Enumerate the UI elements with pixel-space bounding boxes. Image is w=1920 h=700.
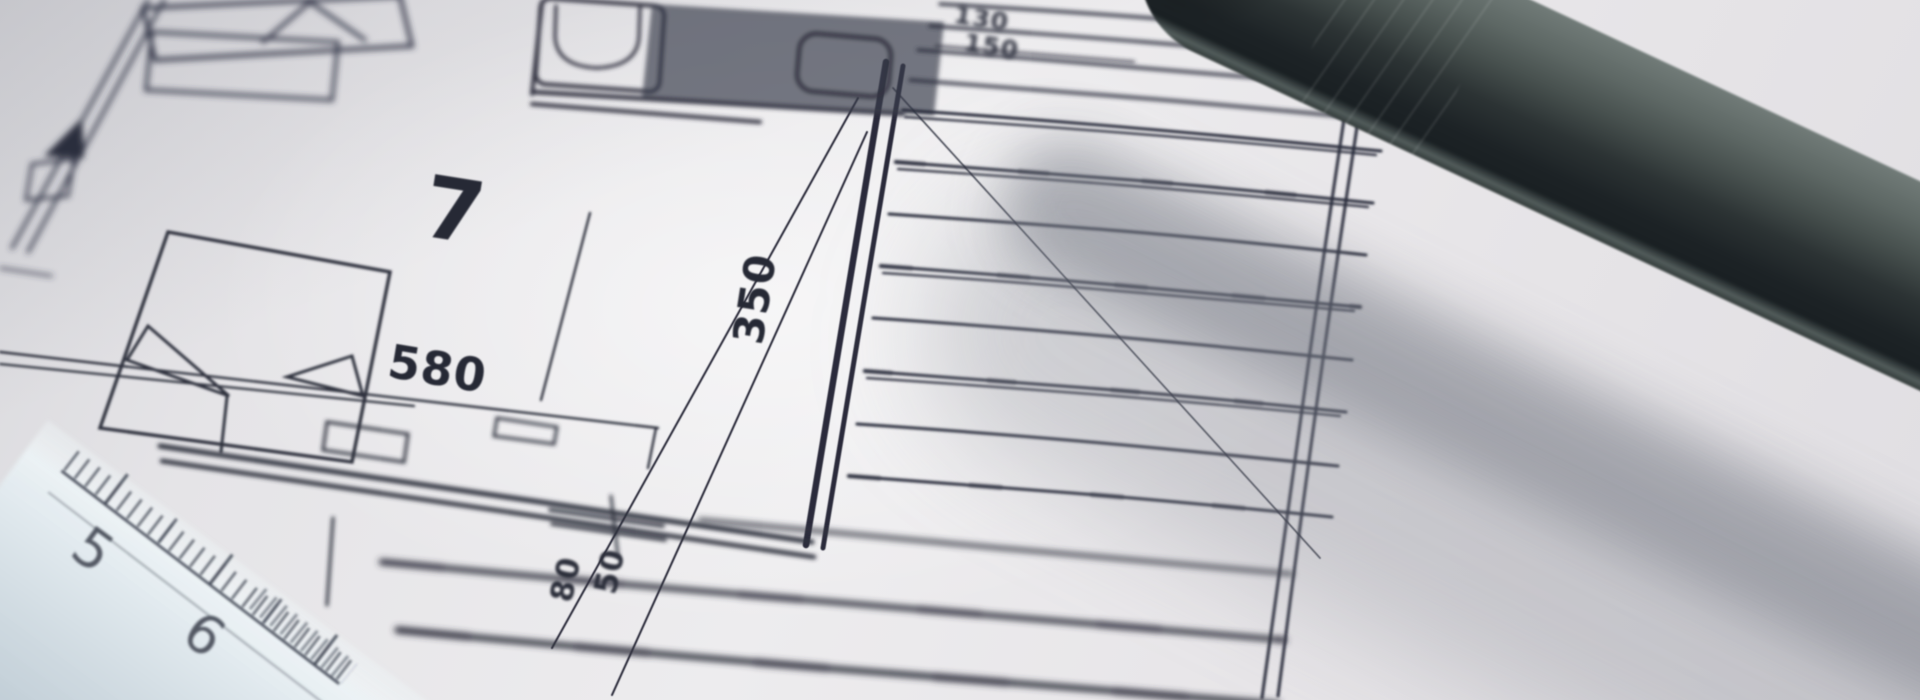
dimension-50-label: 50 xyxy=(591,546,631,597)
ruler-number-5: 5 xyxy=(60,514,125,585)
ruler-number-6: 6 xyxy=(172,599,237,670)
floorplan-photo: 7 580 350 130 150 80 50 5 6 xyxy=(0,0,1920,700)
ruler-tick-scale: 5 6 xyxy=(15,456,356,700)
dimension-80-label: 80 xyxy=(547,554,587,605)
